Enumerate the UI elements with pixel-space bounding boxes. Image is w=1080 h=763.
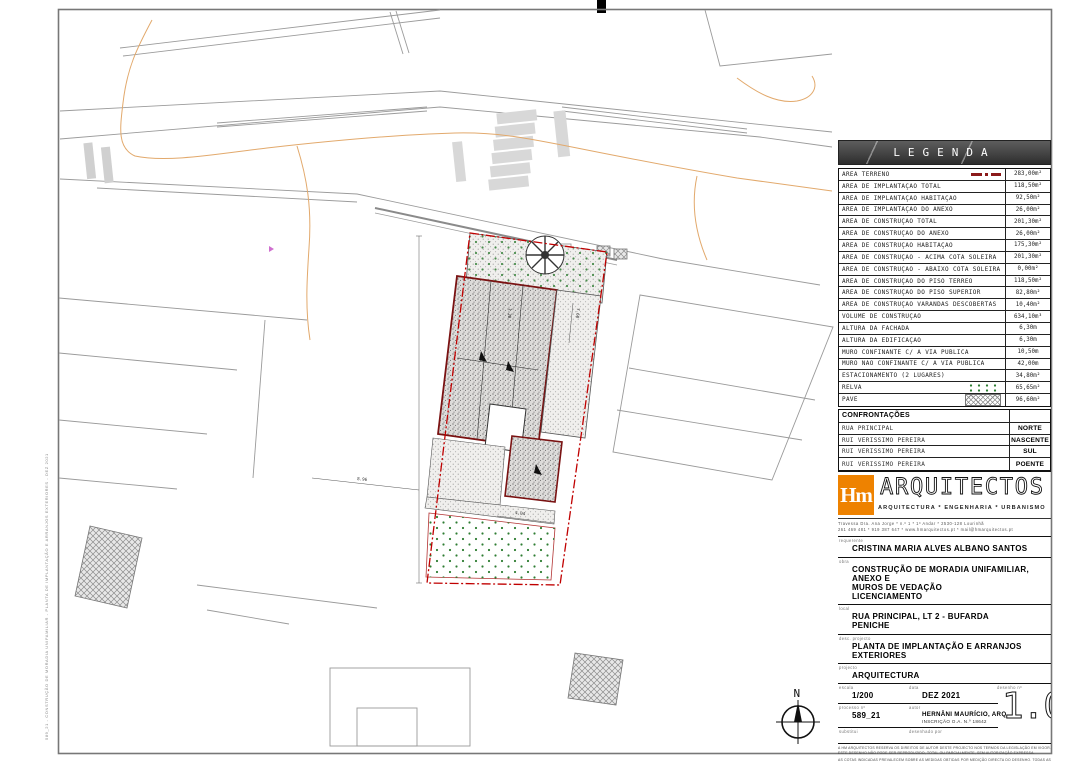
legend-row: MURO CONFINANTE C/ A VIA PÚBLICA10,50m (839, 347, 1050, 359)
obra-line2: MUROS DE VEDAÇÃO (852, 583, 942, 592)
drawing-number: 1.00 (1001, 683, 1051, 725)
title-block-panel: LEGENDA ÁREA TERRENO283,00m² ÁREA DE IMP… (838, 140, 1051, 763)
disclaimer-1: A HM ARQUITECTOS RESERVA OS DIREITOS DE … (838, 746, 1051, 757)
processo-value: 589_21 (852, 711, 908, 720)
obra-label: obra (839, 559, 1051, 564)
escala-label: escala (839, 685, 908, 690)
legend-label: ÁREA DE CONSTRUÇÃO - ACIMA COTA SOLEIRA (839, 254, 1005, 261)
confrontacao-row: RUI VERISSIMO PEREIRAPOENTE (839, 458, 1050, 470)
legend-value: 96,60m² (1005, 394, 1050, 406)
drawing-sheet: 589_21 - CONSTRUÇÃO DE MORADIA UNIFAMILI… (0, 0, 1080, 763)
legend-row: ÁREA DE CONSTRUÇÃO - ABAIXO COTA SOLEIRA… (839, 264, 1050, 276)
confrontacao-name: RUA PRINCIPAL (839, 425, 1009, 432)
legend-row: ÁREA DE CONSTRUÇÃO DO ANEXO26,00m² (839, 228, 1050, 240)
escala-value: 1/200 (852, 691, 908, 700)
legend-value: 118,50m² (1005, 181, 1050, 192)
legend-label: ALTURA DA EDIFICAÇÃO (839, 337, 1005, 344)
svg-text:1.00: 1.00 (1002, 686, 1051, 725)
projecto-value: ARQUITECTURA (852, 671, 1051, 680)
legend-label: ÁREA DE CONSTRUÇÃO VARANDAS DESCOBERTAS (839, 301, 1005, 308)
confrontacao-direction: SUL (1009, 446, 1050, 457)
svg-text:8.96: 8.96 (357, 476, 368, 482)
legend-value: 92,50m² (1005, 193, 1050, 204)
legend-row: ÁREA DE CONSTRUÇÃO HABITAÇÃO175,30m² (839, 240, 1050, 252)
tree-symbol (526, 236, 564, 274)
legend-label: ALTURA DA FACHADA (839, 325, 1005, 332)
firm-address: Travessa Dra. Ana Jorge * n.º 1 * 1º And… (838, 518, 1051, 533)
legend-row: ÁREA DE IMPLANTAÇÃO HABITAÇÃO92,50m² (839, 193, 1050, 205)
legend-label: MURO CONFINANTE C/ A VIA PÚBLICA (839, 349, 1005, 356)
north-label: N (794, 687, 801, 700)
firm-name-outline: ARQUITECTOS (878, 475, 1048, 499)
legend-label: ÁREA DE CONSTRUÇÃO - ABAIXO COTA SOLEIRA (839, 266, 1005, 273)
survey-mark (269, 246, 274, 252)
data-value: DEZ 2021 (922, 691, 996, 700)
legend-table: ÁREA TERRENO283,00m² ÁREA DE IMPLANTAÇÃO… (838, 168, 1051, 407)
legend-value: 65,65m² (1005, 382, 1050, 393)
confrontacoes-title: CONFRONTAÇÕES (839, 412, 1009, 419)
firm-logo: Hm (838, 475, 874, 515)
substitui-label: substitui (839, 729, 908, 734)
firm-block: Hm ARQUITECTOS ARQUITECTURA * ENGENHARIA… (838, 475, 1051, 533)
legend-value: 118,50m² (1005, 276, 1050, 287)
legend-label: ÁREA DE IMPLANTAÇÃO TOTAL (839, 183, 1005, 190)
legend-value: 175,30m² (1005, 240, 1050, 251)
confrontacao-name: RUI VERISSIMO PEREIRA (839, 437, 1009, 444)
desenhado-por-label: desenhado por (909, 729, 1051, 734)
requerente-value: CRISTINA MARIA ALVES ALBANO SANTOS (852, 544, 1051, 553)
confrontacao-row: RUI VERISSIMO PEREIRANASCENTE (839, 435, 1050, 447)
legend-value: 283,00m² (1005, 169, 1050, 180)
confrontacao-name: RUI VERISSIMO PEREIRA (839, 448, 1009, 455)
confrontacao-direction: NASCENTE (1009, 435, 1050, 446)
legend-label: ÁREA DE IMPLANTAÇÃO HABITAÇÃO (839, 195, 1005, 202)
legend-label: MURO NÃO CONFINANTE C/ A VIA PÚBLICA (839, 360, 1005, 367)
confrontacao-direction: POENTE (1009, 458, 1050, 470)
legend-label: VOLUME DE CONSTRUÇÃO (839, 313, 1005, 320)
legend-row: ÁREA DE CONSTRUÇÃO - ACIMA COTA SOLEIRA2… (839, 252, 1050, 264)
plot-stamp-vertical-text: 589_21 - CONSTRUÇÃO DE MORADIA UNIFAMILI… (44, 453, 49, 740)
legend-row: PAVÊ96,60m² (839, 394, 1050, 406)
legend-row: RELVA65,65m² (839, 382, 1050, 394)
requerente-label: requerente (839, 538, 1051, 543)
obra-value: CONSTRUÇÃO DE MORADIA UNIFAMILIAR, ANEXO… (852, 565, 1051, 602)
legend-row: ÁREA TERRENO283,00m² (839, 169, 1050, 181)
firm-tagline: ARQUITECTURA * ENGENHARIA * URBANISMO (878, 505, 1051, 511)
legend-value: 34,80m² (1005, 370, 1050, 381)
legend-row: ALTURA DA EDIFICAÇÃO6,30m (839, 335, 1050, 347)
confrontacoes-header: CONFRONTAÇÕES (839, 410, 1050, 423)
road-markings (83, 141, 113, 185)
legend-value: 0,00m² (1005, 264, 1050, 275)
legend-row: ÁREA DE CONSTRUÇÃO TOTAL201,30m² (839, 216, 1050, 228)
legend-label: ÁREA TERRENO (839, 171, 971, 178)
confrontacao-row: RUI VERISSIMO PEREIRASUL (839, 446, 1050, 458)
svg-text:ARQUITECTOS: ARQUITECTOS (880, 475, 1044, 499)
legend-value: 201,30m² (1005, 252, 1050, 263)
terrain-line-symbol (971, 173, 1001, 176)
legend-label: ÁREA DE CONSTRUÇÃO HABITAÇÃO (839, 242, 1005, 249)
legend-value: 201,30m² (1005, 216, 1050, 227)
local-line1: RUA PRINCIPAL, LT 2 - BUFARDA (852, 612, 989, 621)
obra-line1: CONSTRUÇÃO DE MORADIA UNIFAMILIAR, ANEXO… (852, 565, 1029, 583)
legend-row: ALTURA DA FACHADA6,30m (839, 323, 1050, 335)
legend-value: 26,00m² (1005, 228, 1050, 239)
legend-row: ESTACIONAMENTO (2 LUGARES)34,80m² (839, 370, 1050, 382)
autor-name: HERNÂNI MAURÍCIO, ARQ (922, 711, 1006, 718)
road-lines (60, 10, 832, 285)
confrontacao-row: RUA PRINCIPALNORTE (839, 423, 1050, 435)
legend-header: LEGENDA (838, 140, 1051, 165)
legend-row: ÁREA DE IMPLANTAÇÃO DO ANEXO26,00m² (839, 205, 1050, 217)
north-arrow: N (776, 687, 820, 744)
legend-label: ÁREA DE CONSTRUÇÃO DO ANEXO (839, 230, 1005, 237)
local-label: local (839, 606, 1051, 611)
legend-label: PAVÊ (839, 396, 965, 403)
legend-label: ÁREA DE CONSTRUÇÃO TOTAL (839, 218, 1005, 225)
confrontacao-name: RUI VERISSIMO PEREIRA (839, 461, 1009, 468)
legend-label: RELVA (839, 384, 967, 391)
legend-label: ÁREA DE IMPLANTAÇÃO DO ANEXO (839, 206, 1005, 213)
legend-value: 10,50m (1005, 347, 1050, 358)
legend-value: 6,30m (1005, 323, 1050, 334)
confrontacoes-table: CONFRONTAÇÕES RUA PRINCIPALNORTE RUI VER… (838, 409, 1051, 472)
data-label: data (909, 685, 996, 690)
crosswalk (450, 106, 573, 194)
legend-label: ESTACIONAMENTO (2 LUGARES) (839, 372, 1005, 379)
obra-line3: LICENCIAMENTO (852, 592, 922, 601)
legend-label: ÁREA DE CONSTRUÇÃO DO PISO TÉRREO (839, 278, 1005, 285)
legend-value: 82,80m² (1005, 287, 1050, 298)
grass-dots-symbol (967, 383, 1001, 392)
legend-value: 42,00m (1005, 359, 1050, 370)
legend-value: 10,40m² (1005, 299, 1050, 310)
lot: 8.96 4.04 7.60 1.30 (269, 233, 607, 585)
disclaimer-2: AS COTAS INDICADAS PREVALECEM SOBRE AS M… (838, 758, 1051, 763)
desc-projecto-label: desc. projecto (839, 636, 1051, 641)
legend-row: ÁREA DE CONSTRUÇÃO DO PISO TÉRREO118,50m… (839, 276, 1050, 288)
processo-label: processo nº (839, 705, 908, 710)
confrontacoes-header-cell (1009, 410, 1050, 422)
legend-value: 634,10m³ (1005, 311, 1050, 322)
local-line2: PENICHE (852, 621, 890, 630)
legend-title: LEGENDA (893, 146, 995, 159)
legend-label: ÁREA DE CONSTRUÇÃO DO PISO SUPERIOR (839, 289, 1005, 296)
anexo-block (505, 436, 562, 502)
legend-row: VOLUME DE CONSTRUÇÃO634,10m³ (839, 311, 1050, 323)
local-value: RUA PRINCIPAL, LT 2 - BUFARDA PENICHE (852, 612, 1051, 630)
legend-value: 6,30m (1005, 335, 1050, 346)
firm-address-line2: 261 469 481 * 919 387 647 * www.hmarquit… (838, 527, 1051, 533)
desc-projecto-value: PLANTA DE IMPLANTAÇÃO E ARRANJOS EXTERIO… (852, 642, 1051, 660)
legend-row: ÁREA DE CONSTRUÇÃO VARANDAS DESCOBERTAS1… (839, 299, 1050, 311)
pave-hatch-symbol (965, 394, 1001, 406)
confrontacao-direction: NORTE (1009, 423, 1050, 434)
legend-row: ÁREA DE IMPLANTAÇÃO TOTAL118,50m² (839, 181, 1050, 193)
projecto-label: projecto (839, 665, 1051, 670)
lawn-grass (426, 513, 555, 580)
legend-row: ÁREA DE CONSTRUÇÃO DO PISO SUPERIOR82,80… (839, 287, 1050, 299)
paving-mid (427, 438, 505, 505)
legend-row: MURO NÃO CONFINANTE C/ A VIA PÚBLICA42,0… (839, 359, 1050, 371)
legend-value: 26,00m² (1005, 205, 1050, 216)
